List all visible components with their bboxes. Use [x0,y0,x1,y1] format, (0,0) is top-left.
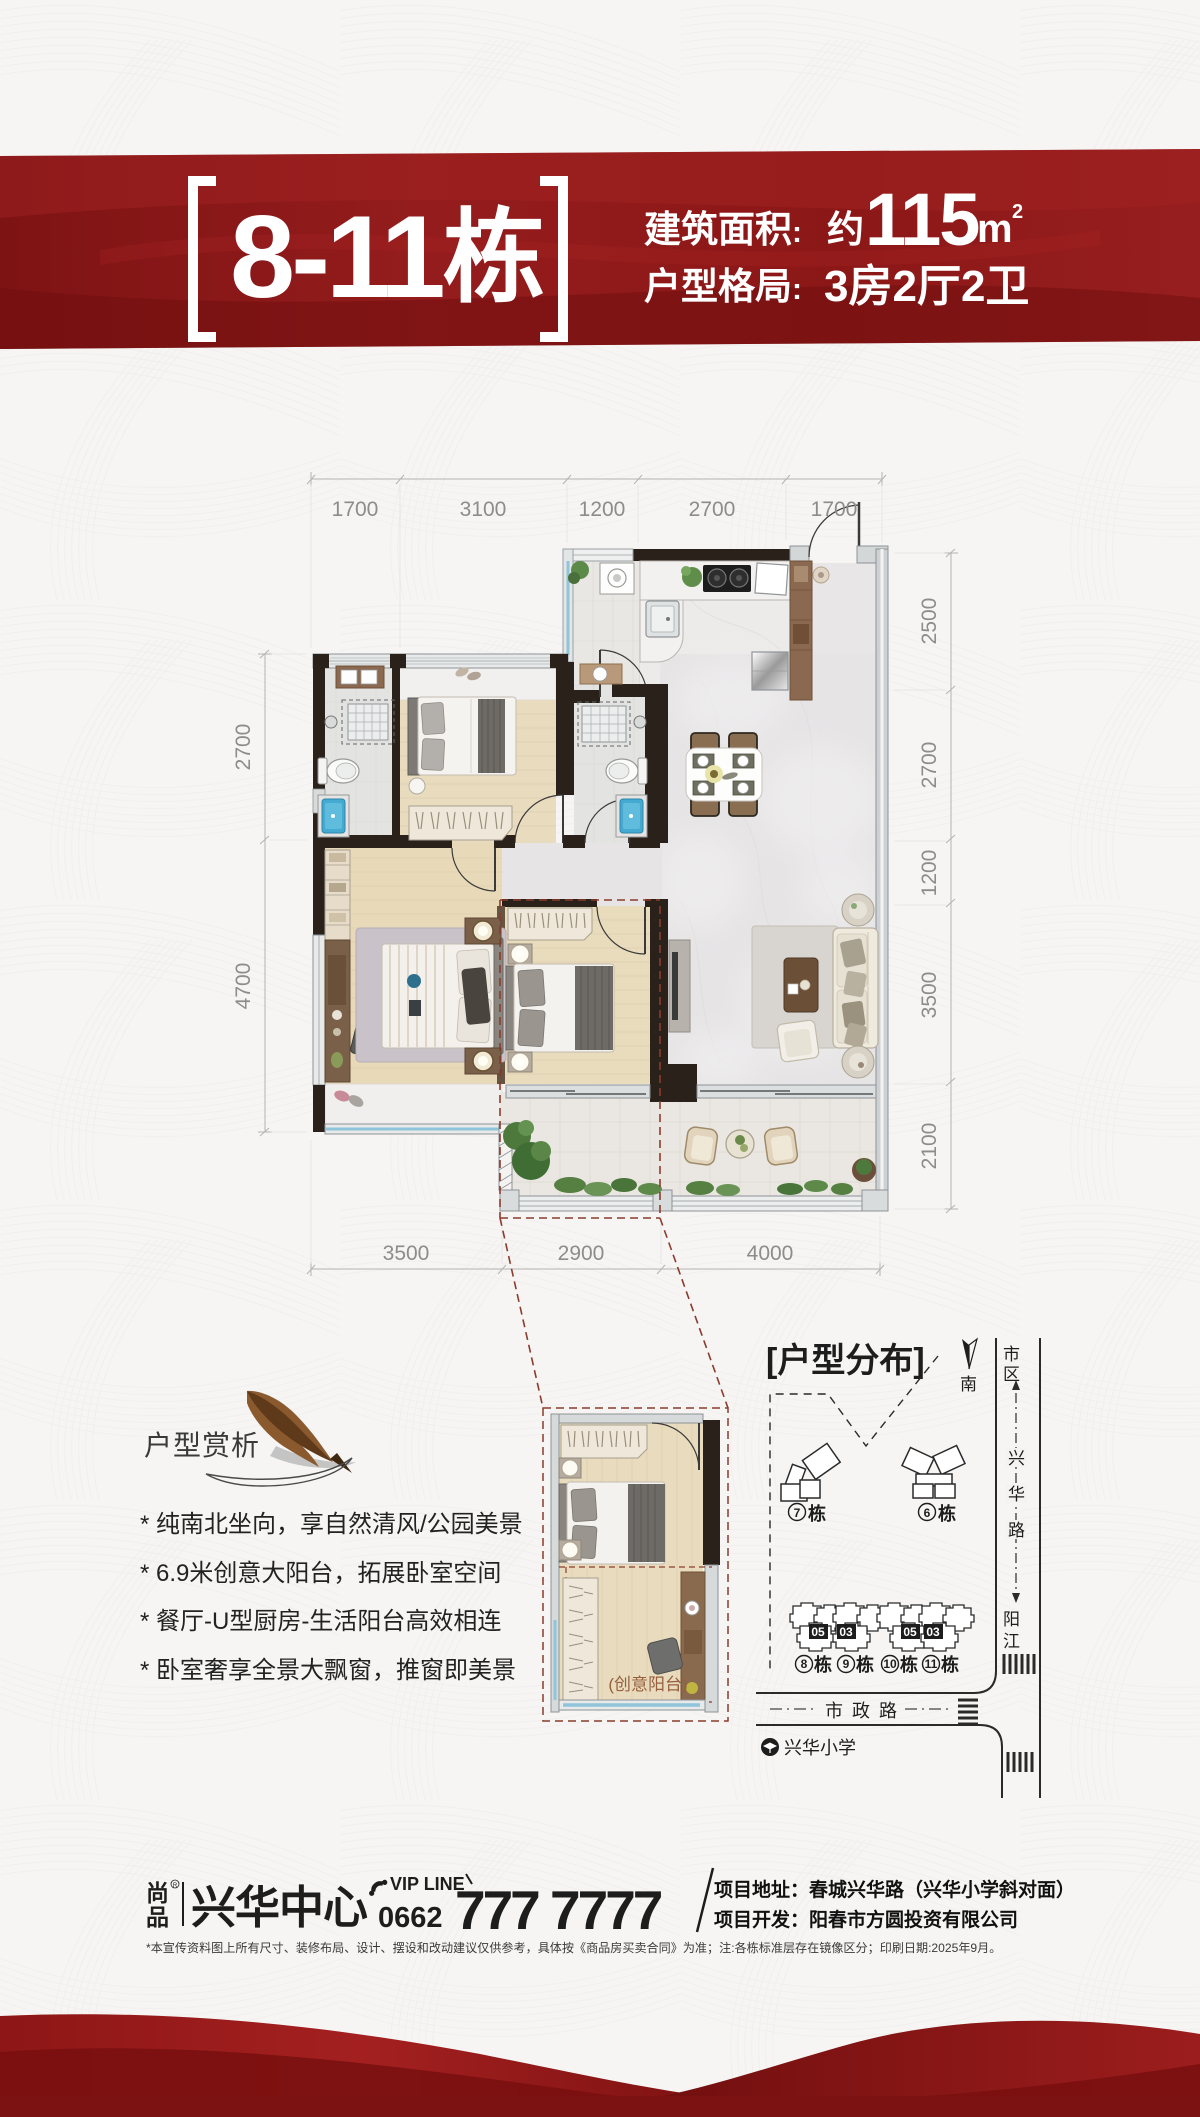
svg-text:3500: 3500 [918,972,941,1019]
svg-text:115: 115 [865,178,979,261]
svg-text:栋: 栋 [856,1654,874,1675]
svg-text:m: m [977,207,1013,251]
svg-text:9: 9 [843,1657,850,1671]
svg-text:*本宣传资料图上所有尺寸、装修布局、设计、摆设和改动建议仅供: *本宣传资料图上所有尺寸、装修布局、设计、摆设和改动建议仅供参考，具体按《商品房… [146,1940,1001,1955]
svg-text:3房2厅2卫: 3房2厅2卫 [824,262,1029,311]
svg-text:区: 区 [1003,1365,1020,1384]
svg-text:* 纯南北坐向，享自然清风/公园美景: * 纯南北坐向，享自然清风/公园美景 [140,1511,523,1538]
svg-text:市: 市 [1003,1345,1020,1364]
svg-text:* 卧室奢享全景大飘窗，推窗即美景: * 卧室奢享全景大飘窗，推窗即美景 [140,1657,516,1684]
svg-text:1700: 1700 [811,498,858,521]
svg-text:2700: 2700 [689,498,736,521]
svg-text:05: 05 [903,1625,917,1639]
svg-text:栋: 栋 [941,1654,959,1675]
svg-text:2700: 2700 [232,724,255,771]
svg-text:栋: 栋 [938,1503,956,1524]
svg-text:1700: 1700 [332,498,379,521]
svg-text:项目地址：春城兴华路（兴华小学斜对面）: 项目地址：春城兴华路（兴华小学斜对面） [714,1878,1075,1901]
svg-text:江: 江 [1003,1632,1020,1651]
svg-text:10: 10 [883,1657,897,1671]
svg-text:市政路: 市政路 [825,1701,906,1721]
svg-text:户型格局:: 户型格局: [644,266,802,307]
svg-text:05: 05 [811,1625,825,1639]
svg-text:户型赏析: 户型赏析 [144,1430,260,1461]
svg-text:约: 约 [827,209,864,250]
svg-text:8: 8 [801,1657,808,1671]
svg-text:阳: 阳 [1003,1610,1020,1629]
svg-text:兴华小学: 兴华小学 [784,1738,856,1758]
svg-text:2900: 2900 [558,1242,605,1265]
svg-text:777 7777: 777 7777 [455,1879,662,1941]
svg-text:6: 6 [924,1506,931,1520]
svg-text:R: R [173,1883,178,1889]
svg-text:(创意阳台): (创意阳台) [608,1675,687,1694]
svg-text:[户型分布]: [户型分布] [766,1342,925,1380]
svg-text:建筑面积:: 建筑面积: [644,209,802,250]
svg-text:路: 路 [1008,1521,1025,1540]
svg-text:2500: 2500 [918,598,941,645]
svg-text:* 餐厅-U型厨房-生活阳台高效相连: * 餐厅-U型厨房-生活阳台高效相连 [140,1608,501,1635]
svg-text:* 6.9米创意大阳台，拓展卧室空间: * 6.9米创意大阳台，拓展卧室空间 [140,1560,501,1587]
svg-text:1200: 1200 [918,850,941,897]
svg-text:4700: 4700 [232,963,255,1010]
svg-text:栋: 栋 [814,1654,832,1675]
svg-text:南: 南 [960,1375,977,1394]
svg-text:兴华中心: 兴华中心 [191,1882,368,1933]
svg-text:11: 11 [925,1657,938,1671]
svg-text:栋: 栋 [443,201,545,315]
svg-text:品: 品 [146,1904,169,1930]
svg-text:栋: 栋 [808,1503,826,1524]
svg-text:2: 2 [1012,201,1023,223]
svg-text:栋: 栋 [900,1654,918,1675]
svg-text:VIP LINE: VIP LINE [390,1874,465,1894]
svg-text:华: 华 [1008,1485,1025,1504]
svg-text:3100: 3100 [460,498,507,521]
svg-text:7: 7 [794,1506,801,1520]
svg-text:03: 03 [926,1625,940,1639]
svg-text:3500: 3500 [383,1242,430,1265]
svg-text:03: 03 [839,1625,853,1639]
svg-text:兴: 兴 [1008,1449,1025,1468]
svg-text:尚: 尚 [146,1880,169,1906]
svg-text:4000: 4000 [747,1242,794,1265]
svg-text:0662: 0662 [378,1902,443,1934]
svg-text:2100: 2100 [918,1123,941,1170]
svg-text:1200: 1200 [579,498,626,521]
svg-text:8-11: 8-11 [230,191,443,322]
svg-text:项目开发：阳春市方圆投资有限公司: 项目开发：阳春市方圆投资有限公司 [714,1908,1018,1931]
svg-text:2700: 2700 [918,742,941,789]
